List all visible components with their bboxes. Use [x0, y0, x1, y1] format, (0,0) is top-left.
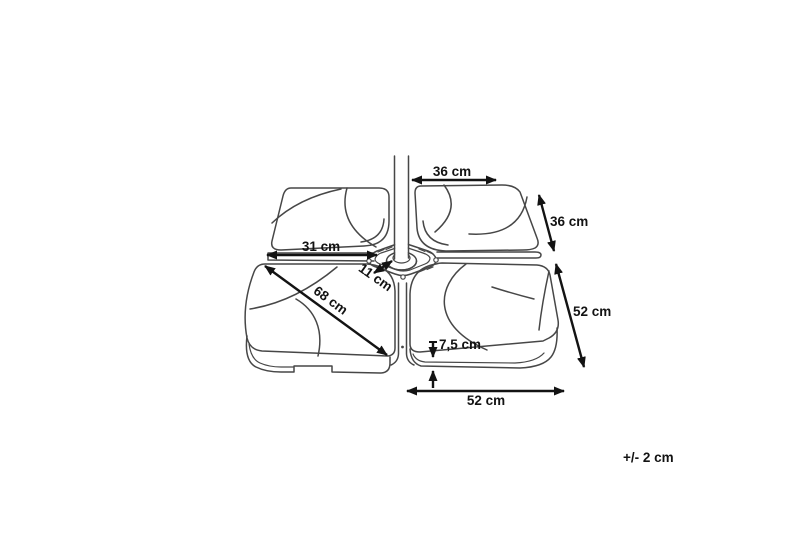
hub-corner-bolt-right: [434, 258, 438, 262]
dim-right-upper-depth-label: 36 cm: [550, 214, 588, 229]
dimension-diagram: 36 cm 36 cm 31 cm 11 cm 68 cm 52 cm 7,5 …: [0, 0, 800, 533]
dim-plate-height-label: 7,5 cm: [439, 337, 481, 352]
dim-right-upper-depth: 36 cm: [539, 195, 588, 251]
plate-bottom-right: [410, 263, 558, 352]
screenshot-canvas: 36 cm 36 cm 31 cm 11 cm 68 cm 52 cm 7,5 …: [0, 0, 800, 533]
dim-left-width-label: 31 cm: [302, 239, 340, 254]
plate-bottom-left-skirt-inner: [249, 344, 293, 367]
plate-bottom-left-contours: [250, 267, 337, 356]
plate-top-right-contours: [423, 185, 527, 245]
arm-drain-dot: [401, 346, 404, 349]
parasol-base-drawing: [245, 156, 558, 373]
dimension-annotations: 36 cm 36 cm 31 cm 11 cm 68 cm 52 cm 7,5 …: [265, 164, 674, 465]
dim-bottom-width: 52 cm: [407, 391, 564, 408]
tolerance-note: +/- 2 cm: [623, 450, 674, 465]
dim-top-width: 36 cm: [412, 164, 496, 180]
dim-right-lower-depth-label: 52 cm: [573, 304, 611, 319]
dim-top-width-label: 36 cm: [433, 164, 471, 179]
cross-arm-right: [437, 252, 541, 258]
dim-bottom-width-label: 52 cm: [467, 393, 505, 408]
dim-right-lower-depth: 52 cm: [556, 264, 611, 367]
hub-corner-bolt-bottom: [401, 275, 405, 279]
plate-top-right: [415, 185, 538, 251]
pole-fill: [395, 156, 408, 260]
